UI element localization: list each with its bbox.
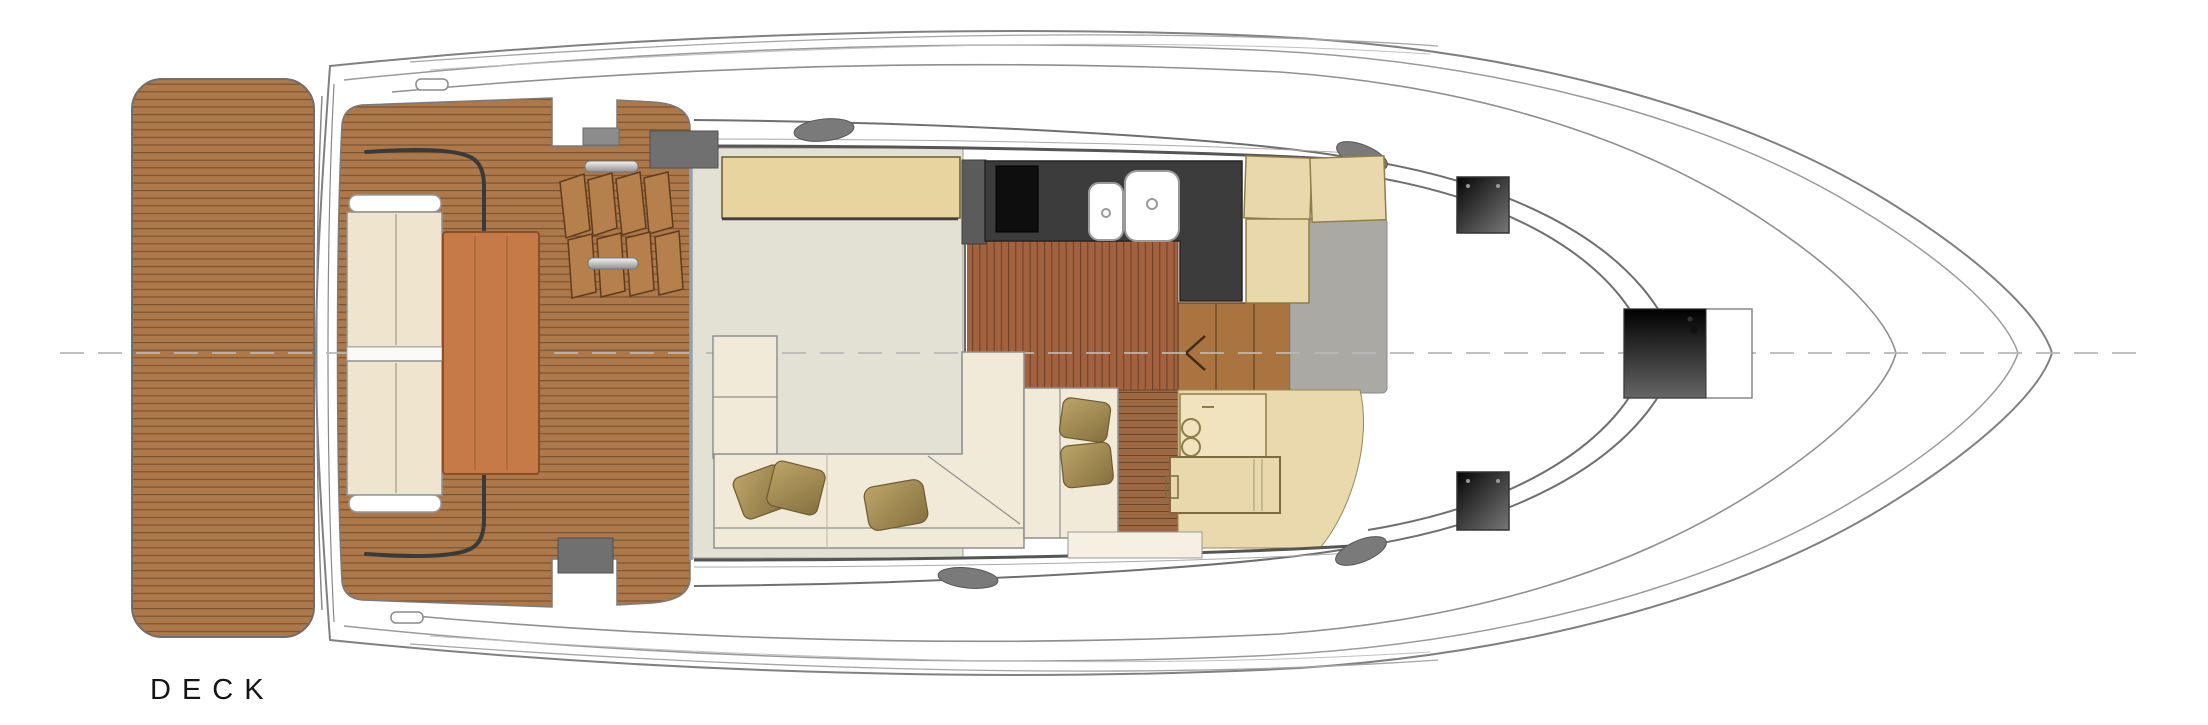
hatch-screw (1496, 184, 1500, 188)
salon-armchair (713, 336, 777, 458)
sink-large-drain (1147, 199, 1157, 209)
boarding-gate-step-top (583, 128, 619, 145)
anchor-windlass-locker (1624, 309, 1752, 398)
hatch-screw (1466, 479, 1470, 483)
cockpit-bench-seat (347, 195, 442, 512)
galley-cooktop (996, 166, 1038, 232)
hatch-screw (1466, 184, 1470, 188)
deck-plan-label: DECK (150, 674, 275, 707)
windlass-detail (1688, 317, 1693, 322)
dinette-table (1166, 457, 1280, 513)
salon-sideboard (722, 157, 960, 219)
pillow-5 (1060, 442, 1114, 489)
cockpit-table (443, 232, 539, 474)
deck-plan-drawing (0, 0, 2208, 725)
swim-platform (132, 79, 314, 637)
pillow-4 (1058, 397, 1111, 443)
chair-latch-bottom (588, 258, 638, 269)
dinette-seat-base (1068, 532, 1202, 558)
foredeck-hatch-port (1457, 177, 1509, 233)
yacht-deck-plan: DECK (0, 0, 2208, 725)
galley-wall-post (962, 160, 986, 244)
companionway-stairs (1178, 303, 1290, 391)
stern-cleat-top (416, 79, 448, 90)
stern-cleat-bottom (391, 612, 423, 623)
hatch-screw (1496, 479, 1500, 483)
sink-small-drain (1102, 209, 1110, 217)
wet-bar-cabinet (1180, 394, 1266, 458)
aft-door-post-bottom (558, 538, 613, 573)
chair-latch-top (585, 161, 638, 172)
foredeck-hatch-starboard (1457, 472, 1509, 530)
pillow-3 (863, 478, 930, 532)
windlass-detail (1691, 327, 1698, 334)
aft-door-post-top (650, 131, 718, 168)
